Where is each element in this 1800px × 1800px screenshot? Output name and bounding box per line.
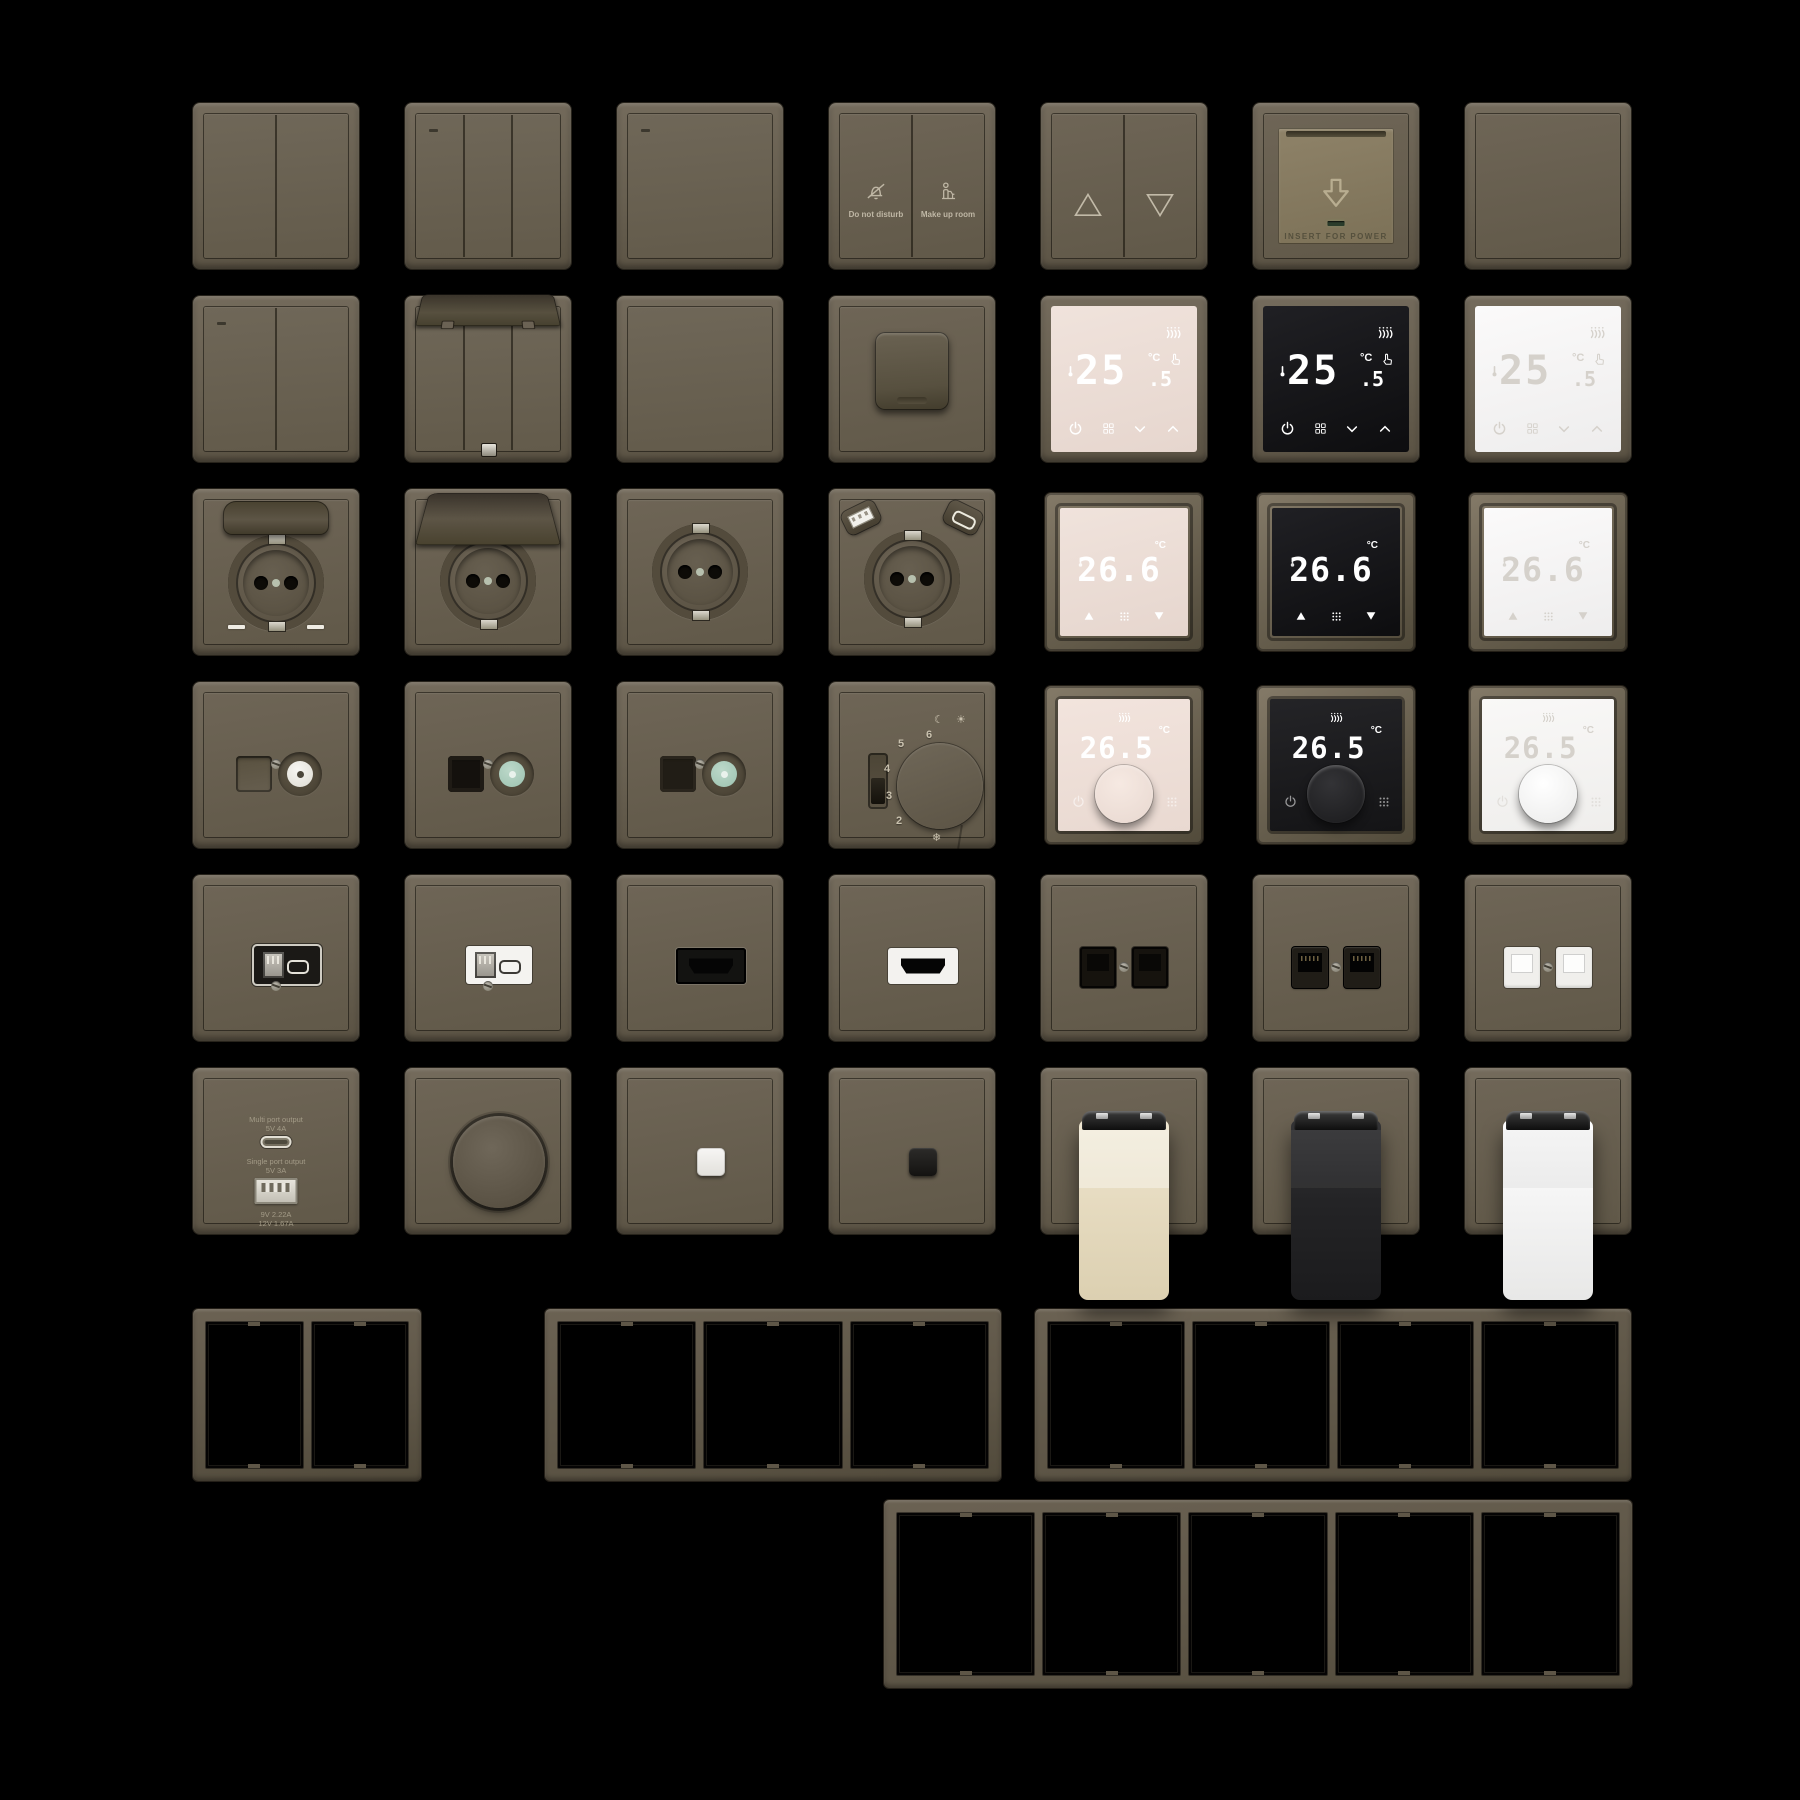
temperature-detail: °C.5 [1360,352,1384,391]
socket-face [1476,886,1620,1030]
rj45-port[interactable] [1292,947,1328,988]
tv-socket-teal[interactable] [617,682,783,848]
temperature-unit: °C [1148,352,1172,364]
thermostat-screen[interactable]: 26.6°C [1060,508,1188,636]
thermostat-screen[interactable]: 26.6°C [1272,508,1400,636]
screw [1543,962,1553,972]
temperature-fraction: .5 [1148,367,1172,391]
heat-waves-icon [1162,321,1184,343]
bell-slash-icon [863,179,889,205]
chevron-down-icon[interactable] [1132,421,1148,437]
curtain-button[interactable] [1053,115,1123,257]
schuko-socket [652,524,748,620]
socket-usb-ac[interactable] [829,489,995,655]
chevron-up-icon[interactable] [1165,421,1181,437]
rocker-button[interactable] [205,115,275,257]
push-button-black[interactable] [829,1068,995,1234]
rocker-group [629,115,771,257]
hdmi-port[interactable] [689,959,733,974]
coax-center [287,761,313,787]
thermostat-body[interactable]: 26.5°C [1058,699,1190,831]
triangle-up-icon [1070,187,1106,223]
frame-slot [1193,1322,1329,1468]
socket-hole-right [284,576,298,590]
rocker-button[interactable] [629,308,771,450]
keycard-label: INSERT FOR POWER [1278,232,1394,241]
frame-slot [1336,1513,1473,1675]
dots-grid-icon [1377,795,1391,809]
rocker-button[interactable] [463,115,511,257]
socket-center-dot [696,568,704,576]
rj45-port[interactable] [1504,947,1540,988]
data-tv-socket-black[interactable] [405,682,571,848]
chevron-down-icon[interactable] [1556,421,1572,437]
dimmer-face [416,1079,560,1223]
switch-2gang-led[interactable] [193,296,359,462]
temperature-value: 25 [1499,348,1551,394]
triangle-down-filled-icon[interactable] [1364,609,1378,623]
coax-pin [297,771,304,778]
usb-charger-outlet[interactable]: Multi port output5V 4ASingle port output… [193,1068,359,1234]
push-button-white[interactable] [617,1068,783,1234]
led-indicator [217,322,226,325]
switch-3gang-lid-open[interactable] [405,296,571,462]
dial-number: 4 [884,763,890,775]
dots-grid-icon[interactable] [1118,610,1131,623]
radiator-valve-black[interactable] [1253,1068,1419,1234]
rocker-group [417,115,559,257]
valve-cap [1082,1111,1166,1130]
thermostat-knob-white[interactable]: 26.5°C [1465,682,1631,848]
data-port [448,756,484,792]
schuko-socket [864,531,960,627]
thermostat-touch-black[interactable]: 25°C.5 [1253,296,1419,462]
frame-2gang[interactable] [193,1309,421,1481]
power-icon[interactable] [1067,420,1084,437]
product-grid: Do not disturbMake up roomINSERT FOR POW… [0,0,1800,1800]
rj45-port[interactable] [1132,947,1168,988]
rocker-group [417,308,559,450]
coax-pin [721,771,728,778]
thermostat-knob-pink[interactable]: 26.5°C [1041,682,1207,848]
frame-5gang[interactable] [884,1500,1632,1688]
menu-grid-icon[interactable] [1525,421,1540,436]
usb-insert [254,946,320,984]
multi-port-label: Multi port output [204,1115,348,1124]
charger-face: Multi port output5V 4ASingle port output… [204,1079,348,1223]
hotel-button-label: Do not disturb [844,210,908,220]
temperature-unit: °C [1583,725,1594,736]
card-slot[interactable] [1286,131,1386,137]
socket-face [204,886,348,1030]
hdmi-outlet-white[interactable] [829,875,995,1041]
socket-hole-left [254,576,268,590]
schuko-socket [440,533,536,629]
thermostat-touch-pink[interactable]: 25°C.5 [1041,296,1207,462]
temperature-fraction: .5 [1360,367,1384,391]
open-lid[interactable] [415,493,561,545]
hdmi-port[interactable] [901,959,945,974]
earth-clip-top [268,534,286,545]
led-indicator [641,129,650,132]
socket-recess [667,539,733,605]
valve-band [1079,1130,1169,1188]
led-indicator [429,129,438,132]
socket-hole-left [466,574,480,588]
rocker-button[interactable] [511,115,559,257]
dial-number: 2 [896,815,902,827]
indicator-right [307,625,324,629]
touch-button-bar [1294,609,1378,623]
temperature-unit: °C [1155,540,1166,551]
socket-recess [455,548,521,614]
coax-connector [490,752,534,796]
heat-waves-icon [1586,321,1608,343]
thermostat-screen[interactable]: 25°C.5 [1475,306,1621,452]
usb-a-port[interactable] [847,506,874,528]
switch-face [204,307,348,451]
frame-slot [1043,1513,1180,1675]
rj45-port[interactable] [1556,947,1592,988]
usb-a-port[interactable] [263,952,284,978]
switch-face [204,114,348,258]
switch-face [416,114,560,258]
spec-line-3: 12V 1.67A [204,1219,348,1228]
switch-1gang-plain[interactable] [617,296,783,462]
temperature-knob[interactable] [1519,765,1577,823]
socket-center-dot [908,575,916,583]
hdmi-outlet-black[interactable] [617,875,783,1041]
button-face [840,1079,984,1223]
keycard-power-holder[interactable]: INSERT FOR POWER [1253,103,1419,269]
triangle-up-filled-icon[interactable] [1506,609,1520,623]
earth-clip-bottom [692,610,710,621]
power-icon[interactable] [1279,420,1296,437]
curtain-button[interactable] [1123,115,1195,257]
socket-hole-right [496,574,510,588]
socket-center-dot [484,577,492,585]
temperature-value: 26.5 [1080,731,1154,765]
switch-face [416,307,560,451]
temperature-unit: °C [1371,725,1382,736]
single-port-label: Single port output [204,1157,348,1166]
socket-recess [243,550,309,616]
socket-face [204,693,348,837]
hdmi-insert [676,948,746,984]
valve-cap [1294,1111,1378,1130]
switch-2gang[interactable] [193,103,359,269]
usb-insert [466,946,532,984]
curtain-halves [1053,115,1195,257]
rocker-button[interactable] [275,115,347,257]
screw [483,981,493,991]
keycard-frame: INSERT FOR POWER [1264,114,1408,258]
temperature-unit: °C [1159,725,1170,736]
temperature-knob[interactable] [1307,765,1365,823]
single-port-spec: 5V 3A [204,1166,348,1175]
earth-clip-bottom [268,621,286,632]
usb-a-port[interactable] [255,1178,298,1204]
temperature-unit: °C [1367,540,1378,551]
touch-button-bar [1279,420,1393,437]
hotel-service-switch[interactable]: Do not disturbMake up room [829,103,995,269]
menu-grid-icon[interactable] [1101,421,1116,436]
dial-number: 6 [926,729,932,741]
usb-c-port[interactable] [499,960,521,974]
temperature-value: 26.5 [1292,731,1366,765]
temperature-unit: °C [1360,352,1384,364]
dots-grid-icon [1589,795,1603,809]
usb-outlet-black[interactable] [193,875,359,1041]
thermostat-knob-black[interactable]: 26.5°C [1253,682,1419,848]
rotary-dimmer[interactable] [405,1068,571,1234]
button-face [628,1079,772,1223]
temperature-knob[interactable] [1095,765,1153,823]
blank-plate[interactable] [1465,103,1631,269]
touch-button-bar [1067,420,1181,437]
socket-lid-closed[interactable] [193,489,359,655]
switch-1gang[interactable] [617,103,783,269]
socket-lid-open[interactable] [405,489,571,655]
push-button[interactable] [697,1148,725,1176]
usb-outlet-white[interactable] [405,875,571,1041]
closed-cover-flap[interactable] [875,332,949,410]
moon-icon: ☾ [934,713,944,726]
heat-waves-icon [1327,708,1345,726]
frame-slot [1338,1322,1474,1468]
dial-number: 3 [886,790,892,802]
earth-clip-top [904,530,922,541]
dial-number: 5 [898,738,904,750]
indicator-left [228,625,245,629]
temperature-unit: °C [1579,540,1590,551]
switch-face [628,307,772,451]
heat-waves-icon [1374,321,1396,343]
temperature-unit: °C [1572,352,1596,364]
rj45-double-black[interactable] [1041,875,1207,1041]
switch-face: Do not disturbMake up room [840,114,984,258]
temperature-dial[interactable] [897,743,983,829]
temperature-value: 26.6 [1289,550,1372,589]
tv-socket-white[interactable] [193,682,359,848]
socket-hole-right [920,572,934,586]
thermostat-framed-pink[interactable]: 26.6°C [1041,489,1207,655]
rocker-group [205,308,347,450]
rj45-port[interactable] [1344,947,1380,988]
lid-clasp [481,443,497,457]
switch-3gang[interactable] [405,103,571,269]
socket-hole-left [678,565,692,579]
coax-pin [509,771,516,778]
hotel-button-label: Make up room [916,210,980,220]
rocker-button[interactable] [275,308,347,450]
dots-grid-icon[interactable] [1542,610,1555,623]
socket-flap-closed[interactable] [829,296,995,462]
temperature-value: 26.6 [1077,550,1160,589]
blank-port [660,756,696,792]
frame-3gang[interactable] [545,1309,1001,1481]
socket-face [628,693,772,837]
thermostat-body[interactable]: 26.5°C [1270,699,1402,831]
touch-button-bar [1491,420,1605,437]
frame-slot [312,1322,409,1468]
touch-button-bar [1506,609,1590,623]
dimmer-knob[interactable] [453,1116,545,1208]
triangle-down-filled-icon[interactable] [1152,609,1166,623]
rocker-group [205,115,347,257]
thermostat-screen[interactable]: 25°C.5 [1263,306,1409,452]
coax-center [711,761,737,787]
hotel-halves: Do not disturbMake up room [841,115,983,257]
thermostat-screen[interactable]: 26.6°C [1484,508,1612,636]
rj45-double-black-raised[interactable] [1253,875,1419,1041]
thermostat-dial-mechanical[interactable]: 23456☾☀❄ [829,682,995,848]
coax-connector [278,752,322,796]
valve-actuator[interactable] [1503,1120,1593,1300]
earth-clip-top [692,523,710,534]
socket-face [1052,886,1196,1030]
rocker-button[interactable] [629,115,771,257]
thermostat-face: 23456☾☀❄ [840,693,984,837]
socket-hole-left [890,572,904,586]
chevron-down-icon[interactable] [1344,421,1360,437]
radiator-valve-cream[interactable] [1041,1068,1207,1234]
rocker-button[interactable] [417,308,463,450]
screw [1331,962,1341,972]
valve-cap [1506,1111,1590,1130]
earth-clip-bottom [480,619,498,630]
power-icon[interactable] [1491,420,1508,437]
thermostat-body[interactable]: 26.5°C [1482,699,1614,831]
rocker-button[interactable] [463,308,511,450]
frost-icon: ❄ [932,831,941,844]
thermostat-touch-white[interactable]: 25°C.5 [1465,296,1631,462]
thermostat-framed-black[interactable]: 26.6°C [1253,489,1419,655]
triangle-down-icon [1142,187,1178,223]
frame-slot [1189,1513,1326,1675]
frame-slot [851,1322,988,1468]
rj45-double-white[interactable] [1465,875,1631,1041]
socket-face [416,886,560,1030]
blank-port [236,756,272,792]
frame-slot [558,1322,695,1468]
rocker-group [629,308,771,450]
chevron-up-icon[interactable] [1589,421,1605,437]
temperature-detail: °C.5 [1148,352,1172,391]
coax-center [499,761,525,787]
socket-face [628,886,772,1030]
mode-slider[interactable] [868,753,888,809]
rj45-port[interactable] [1080,947,1116,988]
temperature-value: 25 [1287,348,1339,394]
open-lid[interactable] [415,294,561,326]
hdmi-insert [888,948,958,984]
thermostat-framed-white[interactable]: 26.6°C [1465,489,1631,655]
triangle-up-filled-icon[interactable] [1082,609,1096,623]
multi-port-spec: 5V 4A [204,1124,348,1133]
rocker-button[interactable] [511,308,559,450]
socket-face [416,693,560,837]
frame-slot [206,1322,303,1468]
curtain-switch[interactable] [1041,103,1207,269]
hotel-button[interactable]: Do not disturb [841,115,911,257]
heat-waves-icon [1115,708,1133,726]
blank-face [1476,114,1620,258]
rocker-button[interactable] [417,115,463,257]
frame-slot [704,1322,841,1468]
power-icon[interactable] [1495,794,1510,809]
frame-slot [1482,1513,1619,1675]
dots-grid-icon[interactable] [1330,610,1343,623]
rocker-button[interactable] [205,308,275,450]
closed-lid[interactable] [223,501,329,535]
temperature-detail: °C.5 [1572,352,1596,391]
temperature-fraction: .5 [1572,367,1596,391]
temperature-value: 26.6 [1501,550,1584,589]
socket-center-dot [272,579,280,587]
earth-clip-bottom [904,617,922,628]
valve-actuator[interactable] [1291,1120,1381,1300]
socket-schuko[interactable] [617,489,783,655]
sun-icon: ☀ [956,713,966,726]
arrow-block-down-icon [1315,172,1357,214]
chevron-up-icon[interactable] [1377,421,1393,437]
valve-band [1503,1130,1593,1188]
switch-face [1052,114,1196,258]
maid-icon [935,179,961,205]
schuko-socket [228,535,324,631]
frame-slot [1048,1322,1184,1468]
temperature-value: 26.5 [1504,731,1578,765]
valve-actuator[interactable] [1079,1120,1169,1300]
lid-hinge [441,321,455,329]
triangle-up-filled-icon[interactable] [1294,609,1308,623]
usb-c-port[interactable] [287,960,309,974]
spec-line-2: 9V 2.22A [204,1210,348,1219]
socket-face [840,886,984,1030]
lid-hinge [521,321,535,329]
power-led [1328,221,1345,226]
screw [1119,962,1129,972]
frame-slot [1482,1322,1618,1468]
hotel-button[interactable]: Make up room [911,115,983,257]
frame-4gang[interactable] [1035,1309,1631,1481]
keycard-slot-face[interactable]: INSERT FOR POWER [1278,128,1394,244]
touch-button-bar [1082,609,1166,623]
power-icon[interactable] [1283,794,1298,809]
coax-connector [702,752,746,796]
triangle-down-filled-icon[interactable] [1576,609,1590,623]
radiator-valve-white[interactable] [1465,1068,1631,1234]
usb-c-port[interactable] [261,1136,292,1148]
socket-face [1264,886,1408,1030]
thermostat-screen[interactable]: 25°C.5 [1051,306,1197,452]
frame-slot [897,1513,1034,1675]
switch-face [628,114,772,258]
valve-band [1291,1130,1381,1188]
heat-waves-icon [1539,708,1557,726]
power-icon[interactable] [1071,794,1086,809]
usb-a-port[interactable] [475,952,496,978]
socket-hole-right [708,565,722,579]
temperature-value: 25 [1075,348,1127,394]
push-button[interactable] [909,1148,937,1176]
dots-grid-icon [1165,795,1179,809]
socket-recess [879,546,945,612]
menu-grid-icon[interactable] [1313,421,1328,436]
screw [271,981,281,991]
